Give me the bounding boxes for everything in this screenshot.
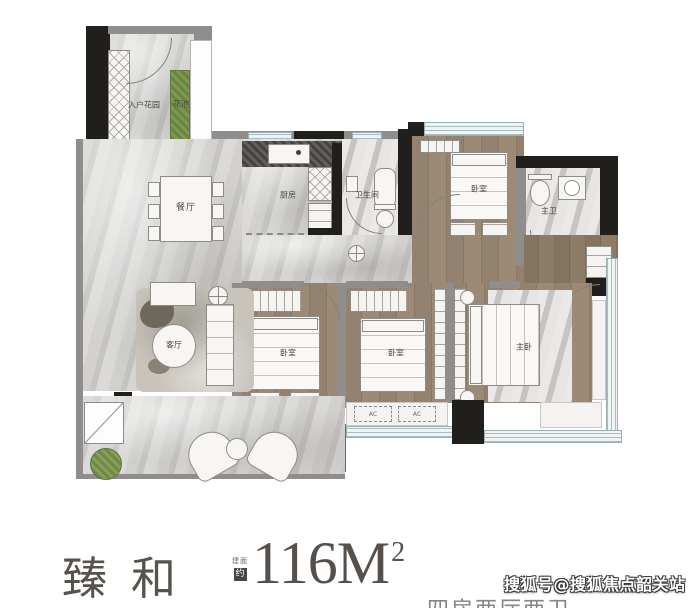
bedroom-mid-label: 卧室 bbox=[280, 350, 296, 359]
sink-bowl bbox=[564, 180, 580, 196]
area-value: 116M2 bbox=[252, 533, 404, 593]
nightstand bbox=[482, 222, 508, 236]
balcony-rail bbox=[190, 40, 212, 142]
wall bbox=[242, 281, 304, 288]
dining-chair bbox=[212, 226, 224, 241]
ac-label: AC bbox=[413, 411, 421, 418]
floor-plan-page: 入户花园 花池 餐厅 厨房 卫生间 卧室 bbox=[0, 0, 695, 608]
wall bbox=[346, 281, 408, 288]
wardrobe bbox=[454, 288, 466, 400]
entry-garden-label: 入户花园 bbox=[128, 102, 160, 111]
toilet bbox=[530, 180, 550, 206]
window bbox=[606, 258, 618, 434]
project-name: 臻和 bbox=[62, 542, 200, 607]
window bbox=[484, 430, 622, 443]
pillow bbox=[252, 318, 318, 330]
wall bbox=[600, 160, 618, 242]
wall bbox=[332, 143, 342, 235]
ceiling-light-icon bbox=[208, 286, 228, 306]
area-number: 116M bbox=[252, 530, 389, 596]
area-superscript: 2 bbox=[391, 537, 404, 568]
ac-unit: AC bbox=[354, 406, 392, 422]
nightstand bbox=[460, 290, 475, 305]
wall bbox=[408, 122, 424, 136]
patio-table bbox=[226, 438, 248, 460]
kitchen-label: 厨房 bbox=[280, 192, 296, 201]
ac-unit: AC bbox=[398, 406, 436, 422]
wall bbox=[490, 281, 520, 288]
area-prefix: 建面 约 bbox=[228, 556, 252, 581]
bath-sink bbox=[346, 176, 358, 192]
bedroom-right-label: 卧室 bbox=[388, 350, 404, 359]
side-table bbox=[150, 282, 196, 306]
floor-hatch bbox=[84, 402, 124, 444]
wardrobe bbox=[350, 290, 408, 312]
dining-chair bbox=[148, 226, 160, 241]
dining-chair bbox=[212, 204, 224, 219]
dining-chair bbox=[148, 204, 160, 219]
master-bedroom-label: 主卧 bbox=[516, 344, 532, 353]
wall bbox=[86, 26, 110, 148]
bedroom-top-label: 卧室 bbox=[471, 186, 487, 195]
master-bath-label: 主卫 bbox=[541, 208, 557, 217]
window bbox=[346, 426, 458, 438]
ceiling-light-icon bbox=[348, 245, 365, 262]
pillow bbox=[452, 154, 506, 166]
area-prefix-line1: 建面 bbox=[228, 556, 252, 566]
area-prefix-line2: 约 bbox=[234, 568, 247, 581]
hall-floor bbox=[242, 235, 412, 283]
pillow bbox=[470, 306, 482, 384]
dining-label: 餐厅 bbox=[176, 204, 196, 214]
watermark: 搜狐号@搜狐焦点韶关站 bbox=[504, 571, 686, 595]
fridge bbox=[308, 167, 332, 201]
sofa bbox=[206, 304, 234, 386]
sink-faucet bbox=[296, 150, 301, 155]
bathroom-label: 卫生间 bbox=[355, 192, 379, 201]
wall bbox=[338, 283, 346, 405]
wall bbox=[398, 129, 412, 237]
wall bbox=[446, 283, 454, 403]
wardrobe bbox=[434, 288, 446, 400]
wall bbox=[76, 139, 83, 479]
living-label: 客厅 bbox=[166, 342, 182, 351]
dining-chair bbox=[212, 182, 224, 197]
kitchen-sink bbox=[268, 144, 310, 164]
potted-plant bbox=[90, 448, 122, 480]
dining-chair bbox=[148, 182, 160, 197]
window bbox=[424, 122, 524, 136]
wall bbox=[452, 400, 484, 444]
planter-top-label: 花池 bbox=[173, 101, 189, 110]
pillow bbox=[362, 320, 424, 332]
window-sill bbox=[540, 402, 602, 428]
ac-label: AC bbox=[369, 411, 377, 418]
